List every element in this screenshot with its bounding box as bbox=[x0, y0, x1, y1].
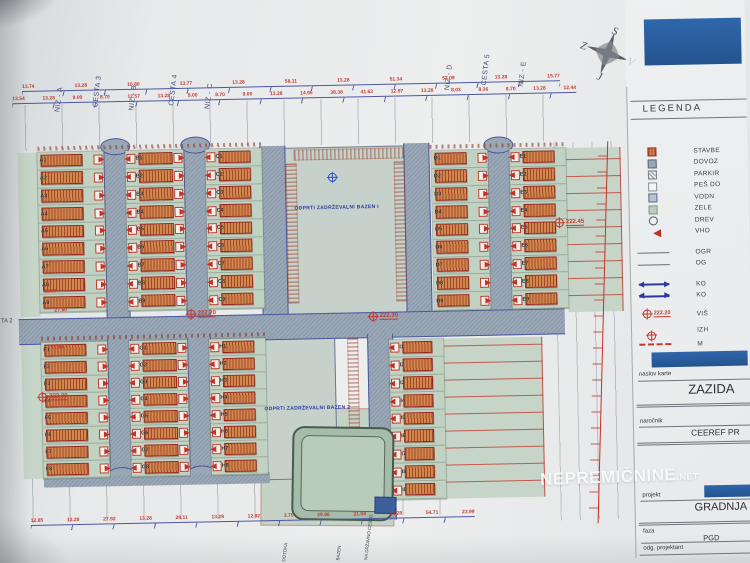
legend-item: VHO bbox=[629, 225, 749, 239]
building-footprint bbox=[41, 189, 83, 203]
yard-parcels-east-lower bbox=[443, 337, 545, 499]
project-value: GRADNJA bbox=[694, 501, 747, 514]
dimension-value: 12.97 bbox=[391, 88, 404, 94]
building-unit: I6 bbox=[391, 428, 445, 447]
building-label: A3 bbox=[40, 193, 47, 199]
legend-item: IZH bbox=[631, 324, 750, 338]
entry-arrow-icon bbox=[123, 227, 132, 233]
building-unit: E8 bbox=[512, 273, 568, 292]
entry-arrow-icon bbox=[180, 226, 189, 232]
building-unit: H6 bbox=[211, 423, 267, 441]
building-unit: E6 bbox=[511, 237, 567, 256]
entry-arrow-icon bbox=[181, 262, 190, 268]
legend-item: KO bbox=[630, 289, 750, 303]
building-label: C5 bbox=[217, 225, 224, 231]
dimension-value: 13.77 bbox=[180, 81, 193, 87]
building-unit: H5 bbox=[210, 406, 266, 424]
entry-arrow-icon bbox=[179, 208, 188, 214]
building-footprint bbox=[143, 392, 177, 405]
building-label: G2 bbox=[140, 362, 147, 368]
building-footprint bbox=[47, 462, 89, 475]
entry-arrow-icon bbox=[124, 281, 133, 287]
entry-arrow-icon bbox=[184, 413, 193, 419]
tree-swatch-icon bbox=[649, 216, 658, 225]
entry-arrow-icon bbox=[206, 378, 215, 384]
legend-label: VHO bbox=[695, 227, 710, 234]
dimension-value: 27.92 bbox=[103, 516, 116, 522]
parking-swatch-icon bbox=[648, 170, 657, 179]
dimension-value: 13.28 bbox=[232, 80, 245, 86]
building-footprint bbox=[224, 425, 256, 438]
entry-arrow-icon bbox=[101, 299, 110, 305]
building-label: E1 bbox=[519, 154, 526, 160]
dimension-value: 9.00 bbox=[73, 95, 83, 101]
building-swatch-icon bbox=[647, 147, 656, 156]
entry-arrow-icon bbox=[179, 173, 188, 179]
entry-arrow-icon bbox=[124, 263, 133, 269]
water-swatch-icon bbox=[648, 193, 657, 202]
building-footprint bbox=[404, 429, 434, 442]
building-label: C7 bbox=[218, 261, 225, 267]
building-footprint bbox=[403, 394, 433, 407]
map-title-label: naslov karte bbox=[639, 371, 671, 378]
building-footprint bbox=[41, 207, 83, 221]
building-unit: F6 bbox=[43, 426, 109, 444]
entry-arrow-icon bbox=[180, 244, 189, 250]
line-swatch-icon bbox=[637, 252, 669, 254]
building-unit: G7 bbox=[131, 442, 189, 460]
building-label: B5 bbox=[137, 227, 144, 233]
building-unit: D6 bbox=[433, 239, 489, 258]
dimension-value: 58.11 bbox=[285, 79, 297, 85]
entry-arrow-icon bbox=[507, 208, 516, 214]
building-footprint bbox=[41, 171, 83, 185]
building-label: G5 bbox=[141, 413, 148, 419]
entry-arrow-icon bbox=[101, 263, 110, 269]
building-unit: C1 bbox=[205, 148, 261, 167]
compass-west-label: Z bbox=[579, 39, 590, 53]
entry-arrow-icon bbox=[185, 464, 194, 470]
building-unit: I8 bbox=[392, 463, 446, 482]
header-blue-bar bbox=[644, 18, 742, 66]
building-unit: D3 bbox=[432, 185, 488, 204]
building-footprint bbox=[42, 242, 84, 256]
dimension-value: 13.28 bbox=[75, 83, 88, 89]
entry-arrow-icon bbox=[485, 262, 494, 268]
titleblock-blue-bar bbox=[651, 351, 747, 368]
entry-arrow-icon bbox=[104, 448, 113, 454]
building-unit: D7 bbox=[434, 256, 490, 275]
building-label: E4 bbox=[521, 207, 528, 213]
building-footprint bbox=[404, 411, 434, 424]
building-unit: B5 bbox=[127, 221, 185, 240]
legend-items: STAVBEDOVOZPARKIRPEŠ DOVODNZELEDREVVHOOG… bbox=[627, 144, 750, 351]
sheet: 13.7413.2810.8013.7713.2858.1113.2851.34… bbox=[0, 0, 750, 563]
building-label: G1 bbox=[139, 345, 146, 351]
building-footprint bbox=[141, 294, 175, 307]
building-label: G3 bbox=[140, 379, 147, 385]
building-footprint bbox=[224, 442, 256, 455]
elevation-cross-icon bbox=[643, 309, 652, 318]
building-label: I8 bbox=[402, 469, 407, 475]
housing-block-B: B1B2B3B4B5B6B7B8B9 bbox=[125, 150, 186, 311]
building-footprint bbox=[222, 357, 254, 370]
building-label: A1 bbox=[39, 158, 46, 164]
building-footprint bbox=[46, 411, 88, 424]
entry-arrow-icon bbox=[181, 297, 190, 303]
entry-arrow-icon bbox=[126, 363, 135, 369]
entry-arrow-icon bbox=[100, 210, 109, 216]
dimension-value: 12.57 bbox=[127, 94, 140, 100]
building-unit: D9 bbox=[434, 292, 490, 311]
dimension-value: 13.28 bbox=[495, 74, 508, 80]
entry-arrow-icon bbox=[178, 155, 187, 161]
entry-arrow-icon bbox=[206, 361, 215, 367]
building-label: D9 bbox=[436, 298, 443, 304]
client-value: CEEREF PR bbox=[691, 427, 740, 438]
building-unit: D4 bbox=[432, 203, 488, 222]
legend-label: STAVBE bbox=[693, 147, 720, 155]
origin-swatch-icon bbox=[647, 327, 656, 336]
entry-arrow-icon bbox=[482, 155, 491, 161]
legend-item: 222.20VIŠ bbox=[631, 307, 750, 321]
entry-arrow-icon bbox=[182, 345, 191, 351]
entry-arrow-icon bbox=[204, 297, 213, 303]
compass-north-label: S bbox=[610, 25, 620, 38]
dimension-value: 13.28 bbox=[139, 516, 152, 522]
building-unit: E3 bbox=[510, 184, 566, 203]
entry-swatch-icon bbox=[649, 229, 661, 237]
housing-block-H: H1H2H3H4H5H6H7H8 bbox=[209, 338, 268, 475]
dimension-value: 51.34 bbox=[390, 76, 403, 82]
entry-arrow-icon bbox=[385, 345, 394, 351]
elevation-value: 222.30 bbox=[380, 312, 399, 320]
building-label: A4 bbox=[41, 211, 48, 217]
building-footprint bbox=[45, 377, 87, 390]
building-label: D4 bbox=[435, 209, 442, 215]
building-label: C2 bbox=[216, 172, 223, 178]
entry-arrow-icon bbox=[100, 246, 109, 252]
legend-label: ZELE bbox=[695, 204, 713, 211]
dimension-value: 8.70 bbox=[506, 86, 516, 92]
building-label: I2 bbox=[400, 362, 405, 368]
building-unit: G4 bbox=[130, 391, 188, 409]
building-label: B1 bbox=[135, 156, 142, 162]
building-label: C9 bbox=[218, 296, 225, 302]
building-unit: F8 bbox=[44, 460, 110, 478]
building-unit: A2 bbox=[38, 169, 104, 188]
phase-label: faza bbox=[643, 528, 654, 534]
building-label: F1 bbox=[43, 347, 50, 353]
building-footprint bbox=[404, 447, 434, 460]
dimension-value: 8.70 bbox=[100, 94, 110, 100]
building-label: D1 bbox=[433, 156, 440, 162]
elevation-marker: 222.20 bbox=[187, 309, 217, 319]
building-label: I1 bbox=[399, 345, 404, 351]
building-footprint bbox=[140, 258, 174, 271]
building-unit: H8 bbox=[212, 457, 268, 475]
legend-label: PARKIR bbox=[694, 170, 720, 178]
entry-arrow-icon bbox=[484, 244, 493, 250]
origin-cross-icon bbox=[328, 173, 337, 182]
building-label: G7 bbox=[141, 447, 148, 453]
dimension-value: 8.36 bbox=[478, 87, 488, 93]
building-label: B2 bbox=[136, 173, 143, 179]
legend-label: KO bbox=[696, 291, 706, 298]
dimension-value: 13.28 bbox=[533, 86, 546, 92]
building-footprint bbox=[142, 342, 176, 355]
entry-arrow-icon bbox=[202, 172, 211, 178]
building-unit: F3 bbox=[42, 375, 108, 393]
entry-arrow-icon bbox=[386, 363, 395, 369]
entry-arrow-icon bbox=[179, 191, 188, 197]
entry-arrow-icon bbox=[207, 412, 216, 418]
legend-title: LEGENDA bbox=[642, 102, 702, 114]
entry-arrow-icon bbox=[121, 156, 130, 162]
building-unit: G1 bbox=[129, 340, 187, 358]
building-unit: G2 bbox=[129, 357, 187, 375]
building-unit: A5 bbox=[39, 223, 105, 242]
elevation-cross-icon bbox=[555, 218, 564, 227]
road-swatch-icon bbox=[648, 159, 657, 168]
elevation-value: 222.20 bbox=[198, 310, 217, 318]
building-unit: B8 bbox=[128, 274, 186, 293]
compass-star-secondary bbox=[591, 37, 624, 70]
legend-label: IZH bbox=[697, 326, 709, 333]
building-footprint bbox=[221, 292, 253, 305]
dimension-value: 14.95 bbox=[300, 90, 313, 96]
building-footprint bbox=[140, 240, 174, 253]
elev-swatch-icon: 222.20 bbox=[643, 309, 687, 319]
building-unit: H3 bbox=[210, 372, 266, 390]
entry-arrow-icon bbox=[181, 280, 190, 286]
building-unit: A6 bbox=[39, 240, 105, 259]
dimension-value: 29.86 bbox=[317, 512, 330, 518]
building-footprint bbox=[222, 340, 254, 353]
building-label: I4 bbox=[400, 398, 405, 404]
entry-arrow-icon bbox=[125, 346, 134, 352]
building-label: G6 bbox=[141, 430, 148, 436]
building-label: A7 bbox=[42, 264, 49, 270]
paper-sheet: 13.7413.2810.8013.7713.2858.1113.2851.34… bbox=[0, 0, 750, 563]
building-footprint bbox=[405, 483, 435, 496]
entry-arrow-icon bbox=[126, 397, 135, 403]
legend-label: VODN bbox=[694, 193, 714, 200]
legend-item: M bbox=[631, 337, 750, 351]
building-unit: B4 bbox=[126, 203, 184, 222]
building-footprint bbox=[219, 203, 251, 216]
entry-arrow-icon bbox=[183, 379, 192, 385]
building-unit: F7 bbox=[43, 443, 109, 461]
building-footprint bbox=[220, 257, 252, 270]
dimension-value: 41.63 bbox=[360, 89, 373, 95]
building-unit: G3 bbox=[130, 374, 188, 392]
entry-arrow-icon bbox=[507, 243, 516, 249]
dimension-value: 13.28 bbox=[421, 88, 434, 94]
building-unit: G5 bbox=[131, 408, 189, 426]
dimension-value: 8.70 bbox=[215, 92, 225, 98]
dimension-value: 27.60 bbox=[54, 307, 67, 313]
building-unit: E1 bbox=[509, 148, 565, 167]
building-label: H2 bbox=[220, 361, 227, 367]
housing-block-F: F1F2F3F4F5F6F7F8 bbox=[41, 341, 110, 478]
entry-arrow-icon bbox=[485, 279, 494, 285]
green-swatch-icon bbox=[649, 205, 658, 214]
building-label: H5 bbox=[221, 412, 228, 418]
entry-arrow-icon bbox=[104, 431, 113, 437]
dimension-value: 23.99 bbox=[462, 509, 475, 515]
entry-arrow-icon bbox=[484, 208, 493, 214]
building-label: B7 bbox=[138, 262, 145, 268]
building-label: A5 bbox=[41, 229, 48, 235]
building-footprint bbox=[522, 150, 554, 163]
dimension-value: 12.92 bbox=[248, 513, 261, 519]
building-unit: D5 bbox=[433, 221, 489, 240]
building-unit: I7 bbox=[391, 445, 445, 464]
building-footprint bbox=[139, 187, 173, 200]
building-footprint bbox=[144, 443, 178, 456]
building-footprint bbox=[221, 274, 253, 287]
rule bbox=[640, 552, 750, 555]
building-label: A9 bbox=[42, 300, 49, 306]
building-label: E3 bbox=[520, 190, 527, 196]
building-footprint bbox=[225, 459, 257, 472]
rule bbox=[631, 117, 747, 120]
building-footprint bbox=[144, 409, 178, 422]
building-label: I5 bbox=[401, 416, 406, 422]
dimension-value: 13.28 bbox=[270, 91, 283, 97]
building-unit: C7 bbox=[207, 255, 263, 274]
building-label: F7 bbox=[45, 449, 52, 455]
entry-arrow-icon bbox=[127, 431, 136, 437]
entry-arrow-icon bbox=[99, 192, 108, 198]
building-label: D2 bbox=[434, 173, 441, 179]
building-unit: I4 bbox=[390, 392, 444, 411]
building-label: A2 bbox=[40, 175, 47, 181]
legend-label: PEŠ DO bbox=[694, 181, 721, 189]
building-footprint bbox=[46, 445, 88, 458]
building-footprint bbox=[525, 257, 557, 270]
client-label: naročnik bbox=[640, 418, 663, 424]
building-label: E5 bbox=[521, 225, 528, 231]
building-footprint bbox=[40, 153, 82, 167]
dimension-value: 18.67 bbox=[44, 288, 57, 294]
dimension-value: 53.09 bbox=[442, 75, 455, 81]
building-unit: A4 bbox=[38, 205, 104, 224]
building-footprint bbox=[220, 221, 252, 234]
elevation-sample: 222.20 bbox=[654, 310, 671, 317]
dimension-value: 8.03 bbox=[451, 87, 461, 93]
entry-arrow-icon bbox=[506, 190, 515, 196]
building-unit: D2 bbox=[432, 167, 488, 186]
building-label: A6 bbox=[41, 247, 48, 253]
building-footprint bbox=[46, 428, 88, 441]
entry-arrow-icon bbox=[203, 244, 212, 250]
entry-arrow-icon bbox=[507, 226, 516, 232]
building-footprint bbox=[219, 186, 251, 199]
housing-block-C: C1C2C3C4C5C6C7C8C9 bbox=[205, 148, 264, 309]
building-footprint bbox=[223, 374, 255, 387]
entry-arrow-icon bbox=[483, 191, 492, 197]
building-unit: F2 bbox=[42, 358, 108, 376]
building-label: H3 bbox=[220, 378, 227, 384]
building-unit: I9 bbox=[392, 481, 446, 500]
rule bbox=[641, 540, 750, 543]
building-unit: H4 bbox=[210, 389, 266, 407]
building-unit: B7 bbox=[127, 256, 185, 275]
building-label: F2 bbox=[44, 364, 51, 370]
building-label: C6 bbox=[217, 243, 224, 249]
building-label: B3 bbox=[136, 191, 143, 197]
building-label: E7 bbox=[522, 261, 529, 267]
map-title-value: ZAZIDA bbox=[688, 381, 735, 397]
building-unit: C3 bbox=[206, 184, 262, 203]
entry-arrow-icon bbox=[184, 447, 193, 453]
entry-arrow-icon bbox=[122, 192, 131, 198]
project-label: projekt bbox=[642, 492, 660, 498]
elevation-value: 222.30 bbox=[49, 393, 68, 401]
entry-arrow-icon bbox=[386, 398, 395, 404]
building-footprint bbox=[523, 203, 555, 216]
building-unit: F5 bbox=[43, 409, 109, 427]
building-unit: B6 bbox=[127, 239, 185, 258]
building-unit: E7 bbox=[512, 255, 568, 274]
entry-arrow-icon bbox=[124, 298, 133, 304]
building-label: I3 bbox=[400, 380, 405, 386]
housing-block-I: I1I2I3I4I5I6I7I8I9 bbox=[389, 339, 446, 500]
building-footprint bbox=[523, 185, 555, 198]
dimension-value: 11.46 bbox=[51, 344, 63, 350]
dimension-value: 13.28 bbox=[158, 93, 171, 99]
entry-arrow-icon bbox=[127, 414, 136, 420]
dimension-value: 15.77 bbox=[547, 73, 560, 79]
retention-basin-1 bbox=[283, 145, 408, 317]
entry-arrow-icon bbox=[103, 363, 112, 369]
building-unit: I1 bbox=[389, 339, 443, 358]
road-basin-east bbox=[403, 143, 433, 319]
entry-arrow-icon bbox=[204, 261, 213, 267]
building-label: E6 bbox=[521, 243, 528, 249]
building-footprint bbox=[224, 408, 256, 421]
entry-arrow-icon bbox=[99, 174, 108, 180]
building-footprint bbox=[405, 465, 435, 478]
building-unit: E9 bbox=[512, 290, 568, 309]
entry-arrow-icon bbox=[128, 465, 137, 471]
entry-arrow-icon bbox=[100, 228, 109, 234]
building-label: H8 bbox=[222, 463, 229, 469]
building-unit: C6 bbox=[207, 237, 263, 256]
building-label: F8 bbox=[46, 466, 53, 472]
entry-arrow-icon bbox=[98, 157, 107, 163]
building-footprint bbox=[218, 150, 250, 163]
dimension-value: 13.28 bbox=[337, 77, 350, 83]
building-label: H1 bbox=[219, 344, 226, 350]
entry-arrow-icon bbox=[122, 174, 131, 180]
entry-arrow-icon bbox=[123, 245, 132, 251]
building-footprint bbox=[525, 292, 557, 305]
building-label: C1 bbox=[215, 154, 222, 160]
entry-arrow-icon bbox=[103, 380, 112, 386]
elevation-cross-icon bbox=[187, 310, 196, 319]
housing-block-G: G1G2G3G4G5G6G7G8 bbox=[129, 340, 190, 477]
elevation-value: 222.45 bbox=[566, 219, 585, 227]
watermark-text: NEPREMIČNINE bbox=[540, 465, 677, 489]
building-unit: H7 bbox=[211, 440, 267, 458]
arrow-swatch-icon bbox=[639, 295, 669, 298]
watermark-suffix: .NET bbox=[676, 471, 699, 482]
entry-arrow-icon bbox=[102, 346, 111, 352]
building-footprint bbox=[138, 152, 172, 165]
